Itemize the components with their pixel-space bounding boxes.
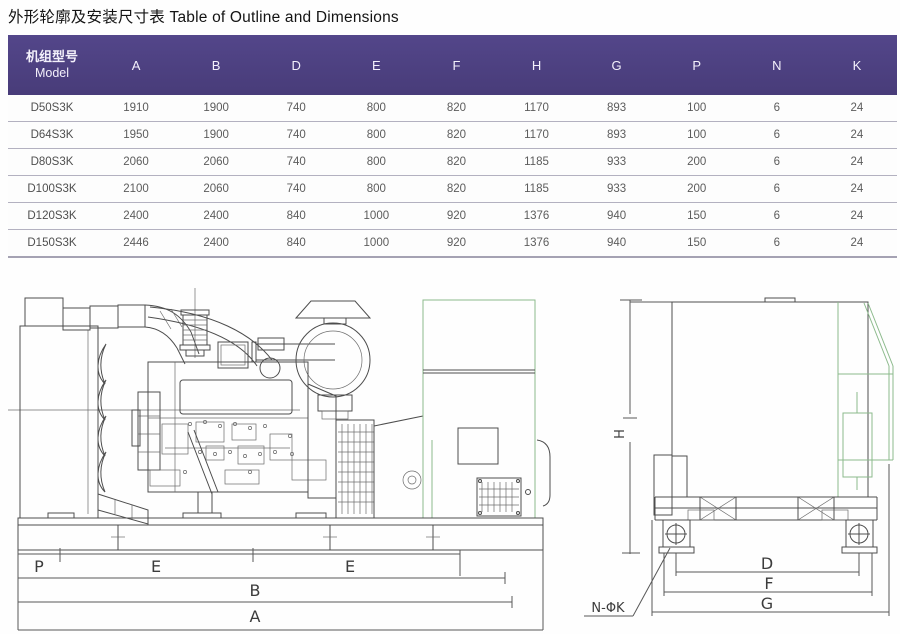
value-cell: 933 bbox=[577, 176, 657, 203]
table-row: D50S3K191019007408008201170893100624 bbox=[8, 95, 897, 122]
dim-label-f: F bbox=[764, 574, 773, 593]
value-cell: 1910 bbox=[96, 95, 176, 122]
column-header: E bbox=[336, 35, 416, 95]
dim-label-g: G bbox=[761, 594, 773, 613]
value-cell: 24 bbox=[817, 176, 897, 203]
dim-label-a: A bbox=[250, 607, 261, 626]
model-column-header: 机组型号 Model bbox=[8, 35, 96, 95]
column-header: B bbox=[176, 35, 256, 95]
value-cell: 24 bbox=[817, 203, 897, 230]
side-view-drawing: P E E B A bbox=[8, 288, 550, 630]
value-cell: 740 bbox=[256, 95, 336, 122]
value-cell: 100 bbox=[657, 122, 737, 149]
table-row: D150S3K2446240084010009201376940150624 bbox=[8, 230, 897, 258]
column-header: H bbox=[496, 35, 576, 95]
dim-label-d: D bbox=[761, 554, 773, 573]
value-cell: 2400 bbox=[176, 203, 256, 230]
table-row: D80S3K206020607408008201185933200624 bbox=[8, 149, 897, 176]
value-cell: 1950 bbox=[96, 122, 176, 149]
catalog-page: 外形轮廓及安装尺寸表 Table of Outline and Dimensio… bbox=[0, 0, 900, 634]
table-header-row: 机组型号 Model ABDEFHGPNK bbox=[8, 35, 897, 95]
genset-outline-drawing: P E E B A H bbox=[0, 284, 900, 634]
value-cell: 840 bbox=[256, 230, 336, 258]
table-row: D100S3K210020607408008201185933200624 bbox=[8, 176, 897, 203]
dim-label-p: P bbox=[34, 557, 44, 576]
mounting-holes-label: N-ΦK bbox=[591, 601, 625, 616]
value-cell: 1170 bbox=[496, 95, 576, 122]
value-cell: 920 bbox=[416, 230, 496, 258]
value-cell: 24 bbox=[817, 122, 897, 149]
table-row: D64S3K195019007408008201170893100624 bbox=[8, 122, 897, 149]
model-cell: D120S3K bbox=[8, 203, 96, 230]
value-cell: 800 bbox=[336, 122, 416, 149]
value-cell: 820 bbox=[416, 95, 496, 122]
column-header: P bbox=[657, 35, 737, 95]
value-cell: 1376 bbox=[496, 230, 576, 258]
value-cell: 820 bbox=[416, 149, 496, 176]
value-cell: 1376 bbox=[496, 203, 576, 230]
value-cell: 820 bbox=[416, 122, 496, 149]
column-header: F bbox=[416, 35, 496, 95]
value-cell: 24 bbox=[817, 230, 897, 258]
value-cell: 933 bbox=[577, 149, 657, 176]
value-cell: 200 bbox=[657, 176, 737, 203]
column-header: A bbox=[96, 35, 176, 95]
value-cell: 1000 bbox=[336, 203, 416, 230]
value-cell: 6 bbox=[737, 149, 817, 176]
value-cell: 920 bbox=[416, 203, 496, 230]
value-cell: 1000 bbox=[336, 230, 416, 258]
value-cell: 24 bbox=[817, 149, 897, 176]
model-cell: D64S3K bbox=[8, 122, 96, 149]
value-cell: 1185 bbox=[496, 149, 576, 176]
value-cell: 6 bbox=[737, 203, 817, 230]
value-cell: 740 bbox=[256, 149, 336, 176]
dim-label-e-right: E bbox=[345, 557, 355, 576]
value-cell: 6 bbox=[737, 176, 817, 203]
value-cell: 24 bbox=[817, 95, 897, 122]
value-cell: 150 bbox=[657, 230, 737, 258]
value-cell: 820 bbox=[416, 176, 496, 203]
dimensions-table: 机组型号 Model ABDEFHGPNK D50S3K191019007408… bbox=[8, 35, 897, 258]
column-header: D bbox=[256, 35, 336, 95]
model-cell: D50S3K bbox=[8, 95, 96, 122]
value-cell: 6 bbox=[737, 122, 817, 149]
table-row: D120S3K2400240084010009201376940150624 bbox=[8, 203, 897, 230]
end-view-drawing: H bbox=[584, 298, 893, 616]
page-title: 外形轮廓及安装尺寸表 Table of Outline and Dimensio… bbox=[8, 5, 399, 27]
value-cell: 2400 bbox=[176, 230, 256, 258]
value-cell: 6 bbox=[737, 230, 817, 258]
model-cell: D150S3K bbox=[8, 230, 96, 258]
value-cell: 1185 bbox=[496, 176, 576, 203]
value-cell: 740 bbox=[256, 176, 336, 203]
value-cell: 1900 bbox=[176, 122, 256, 149]
model-header-zh: 机组型号 bbox=[8, 49, 96, 65]
value-cell: 6 bbox=[737, 95, 817, 122]
value-cell: 1900 bbox=[176, 95, 256, 122]
model-cell: D100S3K bbox=[8, 176, 96, 203]
value-cell: 2446 bbox=[96, 230, 176, 258]
technical-drawings: P E E B A H bbox=[0, 284, 900, 634]
value-cell: 100 bbox=[657, 95, 737, 122]
model-cell: D80S3K bbox=[8, 149, 96, 176]
table-body: D50S3K191019007408008201170893100624D64S… bbox=[8, 95, 897, 257]
value-cell: 940 bbox=[577, 203, 657, 230]
value-cell: 200 bbox=[657, 149, 737, 176]
value-cell: 800 bbox=[336, 176, 416, 203]
value-cell: 893 bbox=[577, 122, 657, 149]
value-cell: 2060 bbox=[176, 176, 256, 203]
dim-label-b: B bbox=[250, 581, 261, 600]
column-header: N bbox=[737, 35, 817, 95]
value-cell: 2100 bbox=[96, 176, 176, 203]
dim-label-e-left: E bbox=[151, 557, 161, 576]
value-cell: 893 bbox=[577, 95, 657, 122]
value-cell: 940 bbox=[577, 230, 657, 258]
value-cell: 800 bbox=[336, 95, 416, 122]
dim-label-h: H bbox=[613, 429, 628, 439]
value-cell: 1170 bbox=[496, 122, 576, 149]
model-header-en: Model bbox=[8, 65, 96, 81]
value-cell: 2400 bbox=[96, 203, 176, 230]
value-cell: 740 bbox=[256, 122, 336, 149]
value-cell: 2060 bbox=[96, 149, 176, 176]
column-header: K bbox=[817, 35, 897, 95]
value-cell: 150 bbox=[657, 203, 737, 230]
column-header: G bbox=[577, 35, 657, 95]
value-cell: 840 bbox=[256, 203, 336, 230]
value-cell: 2060 bbox=[176, 149, 256, 176]
value-cell: 800 bbox=[336, 149, 416, 176]
